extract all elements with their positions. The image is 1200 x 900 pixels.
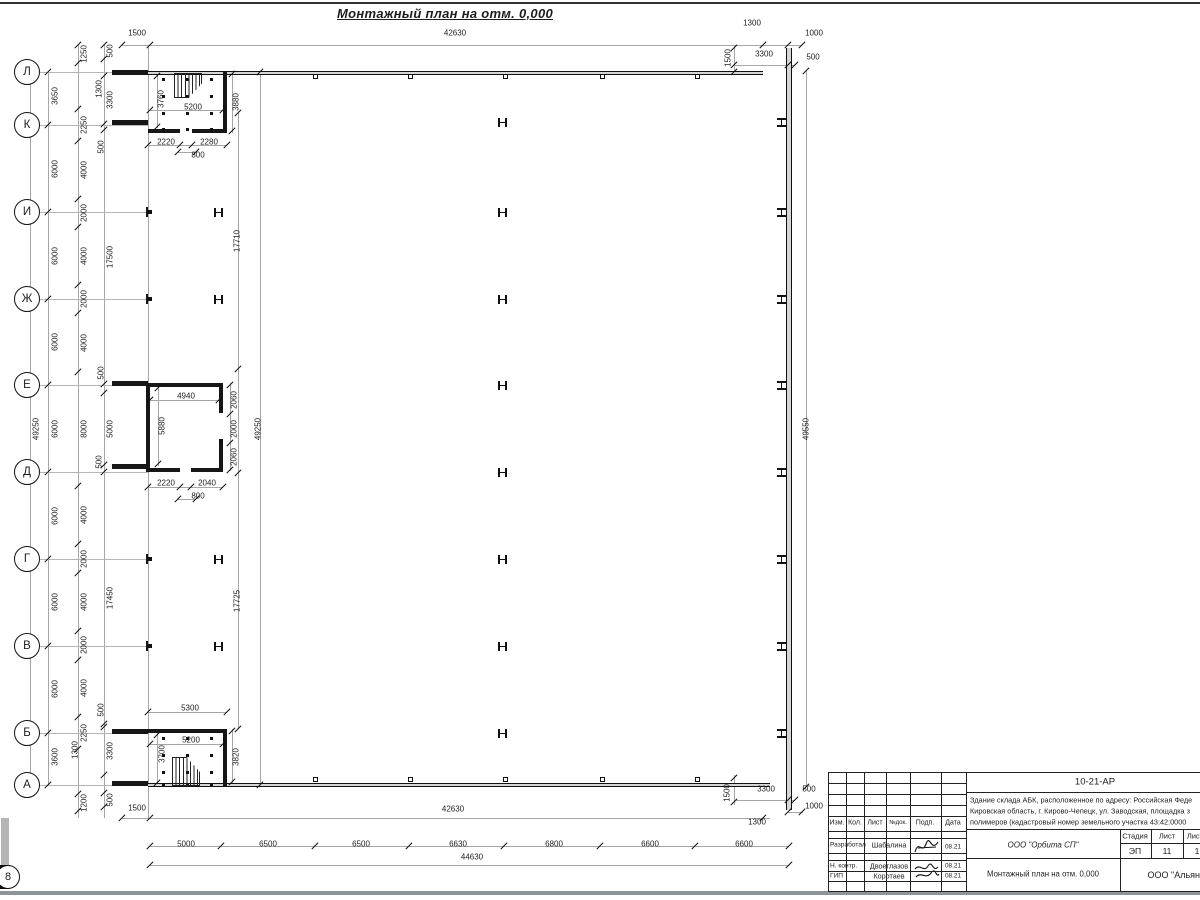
title-block-rule (828, 860, 966, 861)
dim-label: 500 (106, 793, 115, 806)
title-block-rule (828, 772, 829, 892)
dim-label: 1250 (80, 45, 89, 63)
wall-column-marker (600, 777, 605, 782)
steel-column-marker (498, 642, 507, 651)
dim-label: 3880 (232, 93, 241, 111)
axis-bubble-row: Л (14, 59, 40, 85)
dim-label: 1500 (128, 804, 146, 813)
dim-label: 2000 (80, 636, 89, 654)
pile-dot-marker (210, 737, 213, 740)
date-developer: 08.21 (945, 844, 961, 851)
steel-column-marker (498, 208, 507, 217)
dimension-tick (234, 725, 241, 732)
dim-label: 500 (95, 455, 104, 468)
col-list: Лист (867, 820, 882, 827)
dim-label: 6500 (352, 840, 370, 849)
dim-label: 2000 (80, 290, 89, 308)
axis-line (8, 818, 9, 865)
dim-label: 6000 (51, 333, 60, 351)
col-ndok: №док. (889, 820, 907, 826)
dim-label: 42630 (442, 805, 464, 814)
title-block-rule (828, 794, 966, 795)
dim-label: 2220 (157, 479, 175, 488)
axis-line (40, 472, 148, 473)
column-end-marker (148, 210, 152, 214)
dim-label: 2000 (80, 204, 89, 222)
dim-label: 6630 (449, 840, 467, 849)
wall-column-marker (313, 74, 318, 79)
dimension-line (122, 45, 802, 46)
stair-icon (174, 73, 202, 98)
wall-column-marker (695, 74, 700, 79)
dim-label: 17450 (106, 587, 115, 609)
stage-label: Стадия (1122, 832, 1148, 841)
title-block-rule (966, 829, 1200, 830)
dim-label: 500 (106, 44, 115, 57)
axis-line (40, 559, 148, 560)
wall-segment (148, 468, 180, 472)
dimension-tick (785, 842, 792, 849)
dim-label: 1500 (724, 49, 733, 67)
sheets-label: Листов (1187, 832, 1200, 841)
axis-line (40, 299, 148, 300)
name-ncontrol: Двоеглазов (870, 862, 908, 871)
dim-label: 17500 (106, 246, 115, 268)
wall-column-marker (313, 777, 318, 782)
dim-label: 6600 (641, 840, 659, 849)
axis-bubble-row: Б (14, 720, 40, 746)
dimension-tick (791, 61, 798, 68)
dim-label: 2220 (157, 138, 175, 147)
wall-segment (148, 71, 763, 75)
dim-label: 4940 (177, 392, 195, 401)
title-block-rule (1120, 843, 1200, 844)
wall-column-marker (503, 74, 508, 79)
dim-label: 3700 (158, 745, 167, 763)
title-block-rule (966, 792, 1200, 793)
dim-label: 6000 (51, 680, 60, 698)
dimension-tick (228, 127, 235, 134)
dim-label: 49550 (802, 418, 811, 440)
dim-label: 2280 (200, 138, 218, 147)
pile-dot-marker (186, 112, 189, 115)
dim-label: 3300 (106, 91, 115, 109)
dim-label: 4000 (80, 506, 89, 524)
wall-column-marker (600, 74, 605, 79)
dim-label: 3820 (232, 748, 241, 766)
role-gip: ГИП (830, 873, 843, 880)
pile-dot-marker (162, 737, 165, 740)
floor-plan: 1500426301300100015003300500492503650600… (0, 0, 1200, 900)
dim-label: 5000 (177, 840, 195, 849)
wall-segment (223, 72, 227, 132)
dimension-line (48, 72, 49, 785)
dimension-line (122, 818, 770, 819)
axis-bubble-row: Ж (14, 286, 40, 312)
steel-column-marker (498, 729, 507, 738)
dim-label: 4000 (80, 161, 89, 179)
doc-code: 10-21-АР (1075, 777, 1115, 788)
dim-label: 6600 (735, 840, 753, 849)
contractor-org: ООО "Альянс (1148, 870, 1200, 880)
dim-label: 49250 (254, 418, 263, 440)
wall-segment (112, 120, 148, 125)
sheets-count: 1 (1195, 846, 1200, 856)
title-block-rule (966, 772, 967, 891)
dim-label: 6000 (51, 160, 60, 178)
axis-bubble-row: Д (14, 459, 40, 485)
col-kol: Кол. (848, 820, 862, 827)
role-developer: Разработал (830, 842, 866, 849)
dim-label: 2040 (198, 479, 216, 488)
title-block-rule (828, 838, 966, 839)
column-end-marker (148, 557, 152, 561)
axis-bubble-row: И (14, 199, 40, 225)
dim-label: 17725 (233, 590, 242, 612)
dim-label: 2000 (230, 420, 239, 438)
pile-dot-marker (162, 128, 165, 131)
steel-column-marker (777, 729, 786, 738)
steel-column-marker (214, 208, 223, 217)
wall-segment (112, 729, 148, 734)
dimension-tick (226, 466, 233, 473)
name-gip: Коротаев (873, 872, 904, 881)
wall-column-marker (408, 74, 413, 79)
steel-column-marker (498, 381, 507, 390)
dim-label: 6000 (51, 247, 60, 265)
date-ncontrol: 08.21 (945, 863, 961, 870)
dimension-tick (223, 708, 230, 715)
dim-label: 800 (191, 151, 204, 160)
dimension-tick (798, 41, 805, 48)
column-end-marker (148, 644, 152, 648)
dimension-tick (791, 796, 798, 803)
dim-label: 800 (191, 492, 204, 501)
steel-column-marker (777, 381, 786, 390)
dim-label: 5300 (181, 704, 199, 713)
axis-line (40, 125, 148, 126)
column-end-marker (148, 297, 152, 301)
dim-label: 2060 (230, 391, 239, 409)
dim-label: 6800 (545, 840, 563, 849)
wall-segment (191, 468, 223, 472)
pile-dot-marker (210, 783, 213, 786)
dim-label: 4000 (80, 593, 89, 611)
axis-bubble-row: Е (14, 372, 40, 398)
pile-dot-marker (210, 112, 213, 115)
wall-column-marker (503, 777, 508, 782)
dim-label: 5200 (184, 103, 202, 112)
dim-label: 17710 (233, 230, 242, 252)
wall-segment (112, 781, 148, 786)
pile-dot-marker (186, 128, 189, 131)
axis-line (40, 646, 148, 647)
steel-column-marker (777, 208, 786, 217)
steel-column-marker (777, 118, 786, 127)
wall-segment (112, 464, 148, 469)
wall-segment (112, 70, 148, 75)
pile-dot-marker (162, 112, 165, 115)
wall-segment (112, 381, 148, 386)
dim-label: 1500 (723, 784, 732, 802)
column-end-marker (219, 439, 223, 443)
dim-label: 500 (97, 703, 106, 716)
dim-label: 500 (806, 53, 819, 62)
dim-label: 1200 (80, 794, 89, 812)
steel-column-marker (777, 555, 786, 564)
wall-segment (146, 383, 150, 472)
title-block-rule (1183, 829, 1184, 858)
dim-label: 6000 (51, 420, 60, 438)
pile-dot-marker (162, 78, 165, 81)
steel-column-marker (498, 555, 507, 564)
stair-icon (172, 757, 200, 786)
dim-label: 3300 (106, 742, 115, 760)
dim-label: 1300 (71, 741, 80, 759)
project-description-line: Здание склада АБК, расположенное по адре… (970, 796, 1192, 805)
steel-column-marker (214, 295, 223, 304)
dim-label: 6500 (259, 840, 277, 849)
wall-column-marker (695, 777, 700, 782)
title-block-rule (1120, 829, 1121, 891)
name-developer: Шабалина (872, 841, 907, 850)
dim-label: 2250 (80, 724, 89, 742)
dimension-tick (785, 861, 792, 868)
title-block-rule (828, 783, 966, 784)
dim-label: 1000 (805, 29, 823, 38)
title-block-rule (828, 891, 1200, 892)
dim-label: 1300 (95, 80, 104, 98)
dim-label: 4000 (80, 679, 89, 697)
dim-label: 1300 (743, 19, 761, 28)
drawing-name: Монтажный план на отм. 0,000 (987, 870, 1099, 879)
dim-label: 6000 (51, 507, 60, 525)
axis-bubble-row: Г (14, 546, 40, 572)
axis-bubble-row: К (14, 112, 40, 138)
pile-dot-marker (210, 128, 213, 131)
dim-label: 2000 (80, 550, 89, 568)
dim-label: 5200 (182, 736, 200, 745)
stage-value: ЭП (1129, 846, 1141, 856)
axis-bubble-row: А (14, 772, 40, 798)
steel-column-marker (777, 295, 786, 304)
pile-dot-marker (210, 771, 213, 774)
col-podp: Подп. (916, 820, 935, 827)
design-org: ООО "Орбита СП" (1007, 841, 1078, 850)
dim-label: 2250 (80, 116, 89, 134)
project-description-line: Кировская область, г. Кирово-Чепецк, ул.… (970, 807, 1190, 816)
dim-label: 4000 (80, 334, 89, 352)
steel-column-marker (777, 468, 786, 477)
dim-label: 8000 (80, 420, 89, 438)
dim-label: 500 (802, 785, 815, 794)
title-block-rule (828, 772, 1200, 773)
dim-label: 500 (97, 140, 106, 153)
dim-label: 42630 (444, 29, 466, 38)
drawing-sheet: Монтажный план на отм. 0,000 15004263013… (0, 0, 1200, 900)
dim-label: 1500 (128, 29, 146, 38)
dim-label: 1000 (805, 802, 823, 811)
dim-label: 44630 (461, 853, 483, 862)
pile-dot-marker (162, 783, 165, 786)
sheet-number: 11 (1163, 846, 1172, 856)
axis-bubble-col: 8 (0, 865, 20, 889)
title-block-rule (828, 816, 966, 817)
dim-label: 3650 (51, 87, 60, 105)
steel-column-marker (777, 642, 786, 651)
dim-label: 3300 (755, 50, 773, 59)
dim-label: 5880 (158, 417, 167, 435)
title-block-rule (828, 871, 966, 872)
pile-dot-marker (210, 95, 213, 98)
role-ncontrol: Н. контр. (830, 863, 857, 870)
col-data: Дата (945, 820, 961, 827)
title-block-rule (828, 805, 966, 806)
axis-bubble-row: В (14, 633, 40, 659)
title-block-rule (966, 858, 1200, 859)
pile-dot-marker (162, 771, 165, 774)
sheet-label: Лист (1159, 832, 1175, 841)
dimension-line (150, 865, 789, 866)
dimension-tick (154, 460, 161, 467)
dim-label: 5000 (106, 420, 115, 438)
dim-label: 4000 (80, 247, 89, 265)
dim-label: 6000 (51, 593, 60, 611)
dimension-tick (223, 141, 230, 148)
title-block-rule (828, 853, 966, 854)
dim-label: 2060 (230, 448, 239, 466)
wall-column-marker (408, 777, 413, 782)
pile-dot-marker (210, 78, 213, 81)
steel-column-marker (498, 118, 507, 127)
dim-label: 49250 (32, 418, 41, 440)
column-end-marker (219, 405, 223, 409)
date-gip: 08.21 (945, 873, 961, 880)
dimension-tick (219, 483, 226, 490)
wall-segment (786, 48, 792, 810)
title-block-rule (828, 881, 966, 882)
title-block-rule (828, 831, 966, 832)
wall-segment (148, 783, 770, 787)
dim-label: 3600 (51, 748, 60, 766)
steel-column-marker (498, 295, 507, 304)
steel-column-marker (214, 555, 223, 564)
steel-column-marker (214, 642, 223, 651)
dim-label: 3760 (157, 90, 166, 108)
col-izm: Изм. (830, 820, 845, 827)
steel-column-marker (498, 468, 507, 477)
dim-label: 3300 (757, 785, 775, 794)
dim-label: 1300 (748, 818, 766, 827)
pile-dot-marker (186, 754, 189, 757)
project-description-line: полимеров (кадастровый номер земельного … (970, 818, 1186, 827)
title-block-rule (1151, 829, 1152, 858)
dim-label: 500 (97, 366, 106, 379)
axis-line (40, 212, 148, 213)
pile-dot-marker (210, 754, 213, 757)
